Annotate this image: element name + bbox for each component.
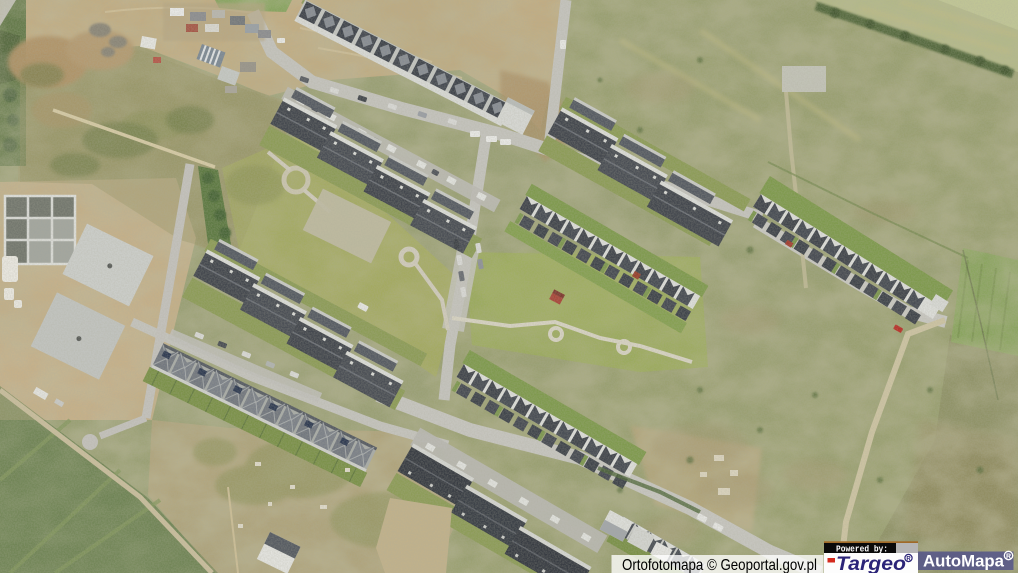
svg-text:R: R [906, 557, 911, 563]
svg-text:Powered by:: Powered by: [836, 544, 888, 555]
svg-text:R: R [1006, 553, 1011, 560]
svg-text:AutoMapa: AutoMapa [923, 552, 1005, 571]
svg-text:Targeo: Targeo [836, 554, 906, 573]
svg-text:Ortofotomapa © Geoportal.gov.p: Ortofotomapa © Geoportal.gov.pl [622, 557, 817, 573]
